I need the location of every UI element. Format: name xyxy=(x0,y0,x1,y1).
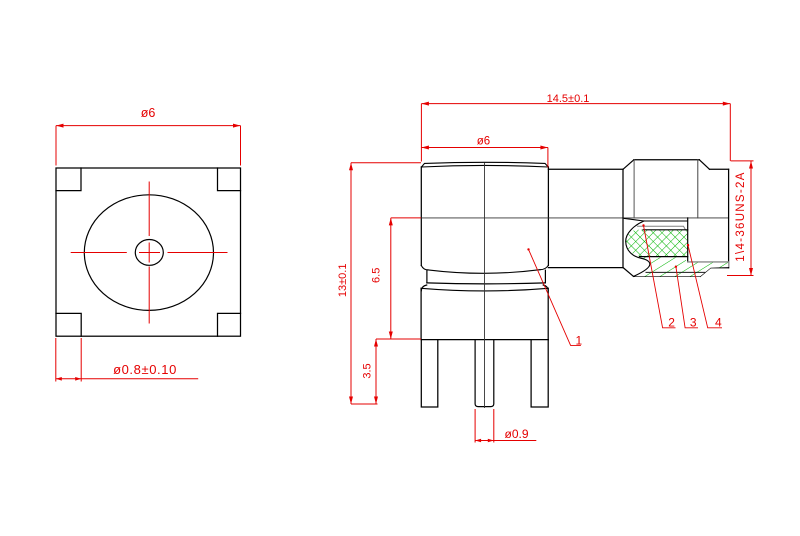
svg-text:ø0.9: ø0.9 xyxy=(504,427,528,441)
svg-text:4: 4 xyxy=(715,316,722,330)
svg-text:3.5: 3.5 xyxy=(362,363,374,378)
svg-text:14.5±0.1: 14.5±0.1 xyxy=(547,93,590,105)
svg-text:ø6: ø6 xyxy=(141,106,156,120)
svg-text:1: 1 xyxy=(575,333,582,347)
svg-text:ø6: ø6 xyxy=(477,136,490,148)
svg-text:3: 3 xyxy=(690,316,697,330)
svg-text:2: 2 xyxy=(668,316,675,330)
svg-text:ø0.8±0.10: ø0.8±0.10 xyxy=(113,362,177,377)
svg-text:6.5: 6.5 xyxy=(371,268,383,283)
svg-text:1\4-36UNS-2A: 1\4-36UNS-2A xyxy=(735,171,747,261)
svg-text:13±0.1: 13±0.1 xyxy=(337,264,349,298)
